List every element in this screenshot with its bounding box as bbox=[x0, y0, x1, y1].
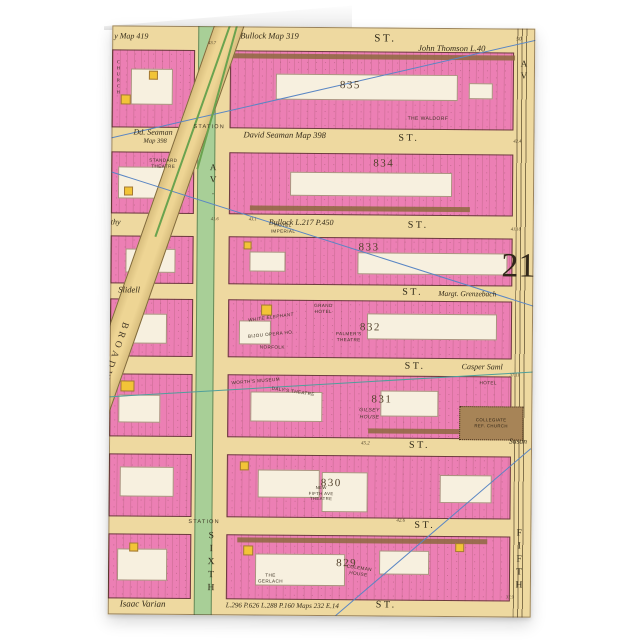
building-footprint bbox=[117, 548, 167, 580]
building-footprint bbox=[118, 394, 160, 422]
city-block bbox=[108, 533, 192, 599]
building-label: HOTEL IMPERIAL bbox=[271, 223, 296, 235]
map-reference: y Map 419 bbox=[114, 31, 148, 40]
building-label: NEW FIFTH AVE THEATRE bbox=[309, 485, 334, 502]
owner-name: Casper Saml bbox=[462, 362, 503, 371]
elevation-number: 41.6 bbox=[211, 216, 219, 221]
city-block bbox=[109, 373, 192, 437]
street-label: ST. bbox=[402, 287, 423, 298]
frame-building bbox=[129, 542, 138, 551]
frame-building bbox=[243, 545, 253, 555]
building-label: GRAND HOTEL bbox=[314, 303, 333, 315]
owner-name: John Thomson L.40 bbox=[418, 43, 485, 54]
fifth-avenue-label: AV bbox=[519, 59, 529, 83]
elevation-number: 43.7 bbox=[208, 40, 216, 45]
frame-building bbox=[121, 94, 131, 104]
building-label-line: GILSEY bbox=[359, 407, 380, 414]
station-label: STATION bbox=[194, 124, 225, 130]
building-footprint bbox=[249, 251, 285, 271]
plate-number: 21 bbox=[501, 249, 535, 283]
map-reference: L.296 P.626 L.288 P.160 Maps 232 E.14 bbox=[226, 601, 339, 610]
building-label-line: HOTEL bbox=[314, 309, 333, 315]
sixth-avenue-name: SIXTH bbox=[206, 531, 217, 596]
elevation-number: 41.10 bbox=[511, 226, 521, 231]
elevation-number: 45.2 bbox=[361, 441, 370, 446]
atlas-map: BROADWAY y Map 419 Bullock Map 319 43.7 … bbox=[108, 25, 536, 617]
building-footprint bbox=[120, 466, 174, 496]
building-label: CHURCH bbox=[116, 59, 121, 95]
block-number: 832 bbox=[360, 321, 381, 333]
city-block bbox=[229, 152, 513, 216]
street-label: ST. bbox=[408, 220, 429, 231]
building-label-line: THEATRE bbox=[309, 496, 334, 502]
frame-building bbox=[120, 380, 134, 391]
building-label-line: HOUSE bbox=[359, 414, 380, 421]
street-label: ST. bbox=[398, 133, 419, 144]
building-footprint bbox=[357, 252, 507, 275]
building-label: PALMER'S THEATRE bbox=[336, 331, 362, 343]
building-label-line: GERLACH bbox=[258, 578, 283, 584]
brown-strip bbox=[250, 205, 470, 212]
map-reference: thy bbox=[111, 217, 121, 226]
block-number: 835 bbox=[340, 79, 361, 91]
frame-building bbox=[455, 543, 464, 552]
building-label-line: REF. CHURCH bbox=[474, 423, 508, 429]
brown-strip bbox=[237, 537, 487, 544]
building-footprint bbox=[469, 83, 493, 99]
station-label: STATION bbox=[188, 519, 219, 525]
elevation-number: 42.4 bbox=[513, 139, 521, 144]
city-block bbox=[108, 453, 191, 517]
owner-name: Susan bbox=[509, 436, 527, 445]
block-number: 831 bbox=[371, 393, 392, 405]
map-reference: Bullock Map 319 bbox=[240, 30, 299, 40]
block-number: 833 bbox=[359, 241, 380, 253]
city-block bbox=[230, 50, 515, 130]
frame-building bbox=[149, 71, 158, 80]
owner-name: Dd. Seaman bbox=[133, 128, 172, 137]
elevation-number: 37.11 bbox=[510, 372, 520, 377]
frame-building bbox=[244, 241, 252, 249]
street-label: ST. bbox=[376, 599, 397, 610]
building-label: GILSEY HOUSE bbox=[359, 407, 380, 420]
street-label: ST. bbox=[409, 440, 430, 451]
building-label-line: IMPERIAL bbox=[271, 229, 296, 235]
corner-number: 50 bbox=[516, 37, 522, 43]
city-block bbox=[226, 454, 510, 519]
collegiate-church-building: COLLEGIATE REF. CHURCH bbox=[459, 406, 523, 441]
owner-name: Isaac Varian bbox=[120, 598, 166, 608]
street-label: ST. bbox=[405, 361, 426, 372]
building-label-line: THEATRE bbox=[336, 337, 362, 343]
building-label: COLLEGIATE REF. CHURCH bbox=[474, 418, 508, 429]
building-label: HOTEL bbox=[479, 380, 496, 386]
building-label: THE WALDORF bbox=[408, 116, 449, 123]
elevation-number: 42.6 bbox=[396, 519, 405, 524]
frame-building bbox=[124, 186, 133, 195]
frame-building bbox=[240, 461, 249, 470]
greeting-card: BROADWAY y Map 419 Bullock Map 319 43.7 … bbox=[108, 25, 536, 617]
elevation-number: 37.9 bbox=[506, 594, 514, 599]
building-label: NORFOLK bbox=[260, 345, 285, 351]
owner-name: Slidell bbox=[118, 284, 140, 294]
elevation-number: 43.1 bbox=[249, 216, 257, 221]
building-footprint bbox=[290, 172, 452, 197]
street-label: ST. bbox=[414, 520, 435, 531]
building-label: THE GERLACH bbox=[258, 573, 283, 585]
owner-name: Margt. Grenzebach bbox=[438, 289, 496, 298]
building-footprint bbox=[367, 313, 497, 340]
product-photo: BROADWAY y Map 419 Bullock Map 319 43.7 … bbox=[0, 0, 644, 644]
building-label: STANDARD THEATRE bbox=[149, 158, 177, 170]
fifth-avenue-name: FIFTH bbox=[514, 529, 525, 594]
sixth-avenue-label: AV. bbox=[208, 162, 218, 198]
street-label: ST. bbox=[374, 32, 396, 44]
map-reference: David Seaman Map 398 bbox=[243, 129, 325, 140]
building-label-line: THEATRE bbox=[149, 164, 177, 170]
block-number: 834 bbox=[373, 157, 394, 169]
map-reference: Map 398 bbox=[143, 138, 166, 145]
